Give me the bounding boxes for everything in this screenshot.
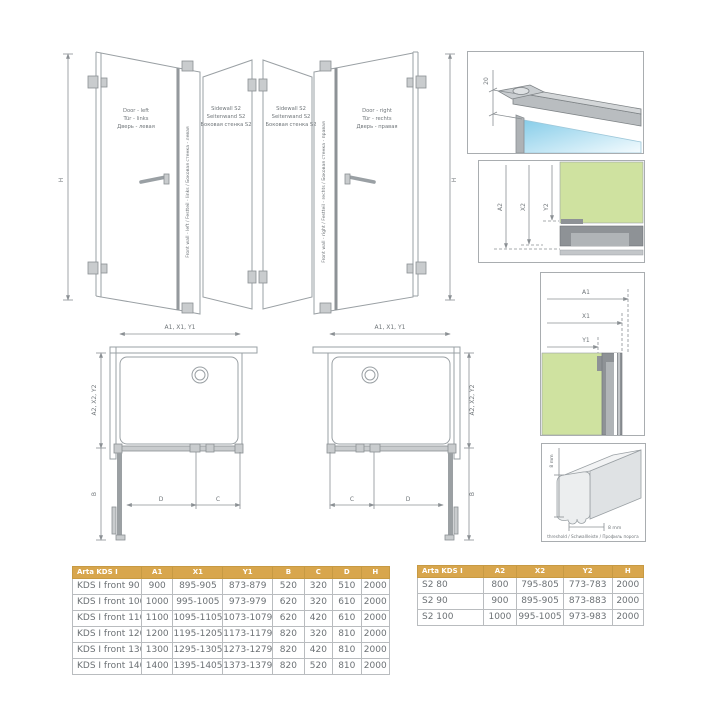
svg-text:Tür - rechts: Tür - rechts (361, 116, 391, 122)
left-elevation-diagram: H Door - left Tür - links Дверь - левая (56, 30, 261, 325)
left-plan-view: A1, X1, Y1 A2, (90, 318, 290, 560)
table-cell: 900 (483, 594, 517, 610)
front-wall-hardware (114, 444, 243, 453)
svg-text:Tür - links: Tür - links (123, 116, 149, 122)
table-cell: 610 (333, 595, 361, 611)
table-cell: 773-783 (563, 578, 612, 594)
table-cell: 1295-1305 (173, 643, 223, 659)
table-cell: 2000 (361, 643, 389, 659)
table-cell: 2000 (612, 610, 643, 626)
extension-dashes (494, 221, 560, 249)
table-cell: 510 (333, 579, 361, 595)
installation-drawing-page: H Door - left Tür - links Дверь - левая (0, 0, 720, 720)
svg-text:Seitenwand S2: Seitenwand S2 (207, 114, 246, 120)
open-door (112, 453, 125, 540)
threshold-detail-panel: 8 mm 8 mm threshold / Schwallleiste / Пр… (541, 443, 646, 542)
threshold-detail: 8 mm 8 mm threshold / Schwallleiste / Пр… (542, 444, 645, 541)
table-cell: 1395-1405 (173, 659, 223, 675)
table-cell: 610 (333, 611, 361, 627)
height-label: H (58, 178, 65, 183)
table-row: KDS I front 90900895-905873-879520320510… (73, 579, 390, 595)
table-cell: 1173-1179 (223, 627, 273, 643)
y2-label: Y2 (543, 203, 550, 212)
table-cell: 895-905 (517, 594, 564, 610)
plan-top-dim-label: A1, X1, Y1 (165, 324, 196, 331)
sidewall-panel (259, 60, 312, 309)
table-cell: KDS I front 100 (73, 595, 142, 611)
sidewall-label: Sidewall S2 Seitenwand S2 Боковая стенка… (200, 106, 251, 128)
side-dimensions (96, 353, 106, 540)
width-dim (569, 523, 604, 531)
shower-tray (328, 353, 454, 448)
table-cell: 810 (333, 659, 361, 675)
column-header: C (304, 567, 332, 579)
svg-text:Door - right: Door - right (362, 108, 392, 114)
open-door (445, 453, 458, 540)
height-dim-label: 8 mm (549, 454, 555, 468)
table-cell: 420 (304, 611, 332, 627)
sidewall-detail: A2 X2 Y2 (479, 161, 644, 262)
table-cell: KDS I front 120 (73, 627, 142, 643)
table-cell: S2 90 (418, 594, 484, 610)
side-dim-label: A2, X2, Y2 (469, 384, 476, 415)
table-cell: 873-879 (223, 579, 273, 595)
sidewall-detail-panel: A2 X2 Y2 (478, 160, 645, 263)
table-cell: 1400 (141, 659, 173, 675)
column-header: B (273, 567, 305, 579)
glass-panel (560, 162, 643, 223)
table-cell: 1095-1105 (173, 611, 223, 627)
table-cell: 795-805 (517, 578, 564, 594)
table-cell: 973-979 (223, 595, 273, 611)
table-cell: 873-883 (563, 594, 612, 610)
door-hinges (88, 76, 107, 274)
door-label: Door - left Tür - links Дверь - левая (117, 108, 155, 130)
c-dim-label: C (350, 496, 354, 503)
table-cell: 420 (304, 643, 332, 659)
column-header: H (361, 567, 389, 579)
table-cell: 2000 (361, 595, 389, 611)
table-cell: 1195-1205 (173, 627, 223, 643)
svg-text:Sidewall S2: Sidewall S2 (276, 106, 306, 112)
side-dimensions (464, 353, 474, 540)
a2-label: A2 (497, 203, 504, 211)
table-cell: 820 (273, 643, 305, 659)
table-cell: 1000 (483, 610, 517, 626)
table-cell: 995-1005 (173, 595, 223, 611)
y1-label: Y1 (581, 337, 590, 344)
side-dim-label: A2, X2, Y2 (91, 384, 98, 415)
table-cell: 900 (141, 579, 173, 595)
table-cell: 2000 (612, 578, 643, 594)
column-header: Y1 (223, 567, 273, 579)
sidewall-dimensions-table: Arta KDS IA2X2Y2HS2 80800795-805773-7832… (417, 565, 644, 626)
support-bar-detail: 20 (468, 52, 643, 153)
front-wall-hardware (327, 444, 456, 453)
sidewall-label: Sidewall S2 Seitenwand S2 Боковая стенка… (265, 106, 316, 128)
table-cell: 1273-1279 (223, 643, 273, 659)
bottom-dimensions (330, 452, 443, 509)
table-cell: KDS I front 110 (73, 611, 142, 627)
front-detail-panel: A1 X1 Y1 (540, 272, 645, 436)
svg-text:Sidewall S2: Sidewall S2 (211, 106, 241, 112)
table-cell: KDS I front 90 (73, 579, 142, 595)
drain (192, 367, 208, 383)
support-bar-detail-panel: 20 (467, 51, 644, 154)
right-plan-view: A1, X1, Y1 A2, (280, 318, 480, 560)
height-label: H (451, 178, 458, 183)
table-row: KDS I front 14014001395-14051373-1379820… (73, 659, 390, 675)
table-cell: 2000 (361, 611, 389, 627)
table-cell: 1000 (141, 595, 173, 611)
column-header: A2 (483, 566, 517, 578)
table-cell: KDS I front 140 (73, 659, 142, 675)
dim-20-label: 20 (483, 77, 490, 85)
door-handle (345, 174, 374, 184)
column-header: X1 (173, 567, 223, 579)
table-cell: 800 (483, 578, 517, 594)
column-header: H (612, 566, 643, 578)
svg-text:Door - left: Door - left (123, 108, 149, 114)
drain (362, 367, 378, 383)
right-elevation-diagram: Sidewall S2 Seitenwand S2 Боковая стенка… (253, 30, 463, 325)
front-detail: A1 X1 Y1 (541, 273, 644, 435)
table-cell: 520 (304, 659, 332, 675)
d-dim-label: D (159, 496, 164, 503)
table-cell: 2000 (361, 627, 389, 643)
table-cell: 320 (304, 627, 332, 643)
table-cell: 620 (273, 595, 305, 611)
table-cell: 620 (273, 611, 305, 627)
column-header: A1 (141, 567, 173, 579)
table-cell: 320 (304, 579, 332, 595)
table-cell: 1200 (141, 627, 173, 643)
svg-text:Дверь - правая: Дверь - правая (356, 124, 397, 130)
front-wall-label: Front wall - right / Festteil - rechts /… (321, 121, 327, 263)
b-dim-label: B (91, 492, 98, 496)
bracket (561, 219, 583, 224)
table-cell: 810 (333, 643, 361, 659)
table-row: KDS I front 11011001095-11051073-1079620… (73, 611, 390, 627)
c-dim-label: C (216, 496, 220, 503)
table-cell: KDS I front 130 (73, 643, 142, 659)
table-row: KDS I front 12012001195-12051173-1179820… (73, 627, 390, 643)
a1-label: A1 (582, 289, 590, 296)
column-header: Arta KDS I (418, 566, 484, 578)
table-cell: S2 100 (418, 610, 484, 626)
svg-text:Боковая стенка S2: Боковая стенка S2 (265, 122, 316, 128)
table-cell: 820 (273, 659, 305, 675)
column-header: X2 (517, 566, 564, 578)
table-cell: 2000 (361, 579, 389, 595)
threshold-profile (557, 450, 641, 524)
table-cell: 1373-1379 (223, 659, 273, 675)
table-row: KDS I front 1001000995-1005973-979620320… (73, 595, 390, 611)
height-dimension (63, 54, 73, 300)
table-cell: 1100 (141, 611, 173, 627)
threshold-caption: threshold / Schwallleiste / Профиль поро… (547, 534, 639, 539)
svg-text:Боковая стенка S2: Боковая стенка S2 (200, 122, 251, 128)
table-cell: 820 (273, 627, 305, 643)
table-cell: S2 80 (418, 578, 484, 594)
sidewall-panel (203, 60, 256, 309)
height-dimension (445, 54, 455, 300)
door-hinges (407, 76, 426, 274)
table-cell: 973-983 (563, 610, 612, 626)
table-cell: 895-905 (173, 579, 223, 595)
table-row: S2 90900895-905873-8832000 (418, 594, 644, 610)
door-label: Door - right Tür - rechts Дверь - правая (356, 108, 397, 130)
b-dim-label: B (469, 492, 476, 496)
front-wall-label: Front wall - left / Festteil - links / Б… (185, 126, 191, 258)
column-header: Y2 (563, 566, 612, 578)
table-row: S2 1001000995-1005973-9832000 (418, 610, 644, 626)
wall-profile (560, 226, 643, 255)
table-row: KDS I front 13013001295-13051273-1279820… (73, 643, 390, 659)
width-dim-label: 8 mm (608, 525, 622, 531)
column-header: D (333, 567, 361, 579)
table-cell: 1300 (141, 643, 173, 659)
table-cell: 1073-1079 (223, 611, 273, 627)
table-row: S2 80800795-805773-7832000 (418, 578, 644, 594)
shower-tray (116, 353, 242, 448)
front-dimensions-table: Arta KDS IA1X1Y1BCDHKDS I front 90900895… (72, 566, 390, 675)
table-cell: 2000 (612, 594, 643, 610)
glass-panel (542, 353, 602, 435)
x1-label: X1 (582, 313, 590, 320)
plan-top-dim-label: A1, X1, Y1 (375, 324, 406, 331)
table-cell: 320 (304, 595, 332, 611)
table-cell: 520 (273, 579, 305, 595)
x2-label: X2 (520, 203, 527, 211)
table-cell: 810 (333, 627, 361, 643)
svg-text:Seitenwand S2: Seitenwand S2 (272, 114, 311, 120)
table-cell: 2000 (361, 659, 389, 675)
d-dim-label: D (406, 496, 411, 503)
bottom-dimensions (127, 452, 240, 509)
table-cell: 995-1005 (517, 610, 564, 626)
svg-text:Дверь - левая: Дверь - левая (117, 124, 155, 130)
column-header: Arta KDS I (73, 567, 142, 579)
door-handle (141, 174, 169, 184)
